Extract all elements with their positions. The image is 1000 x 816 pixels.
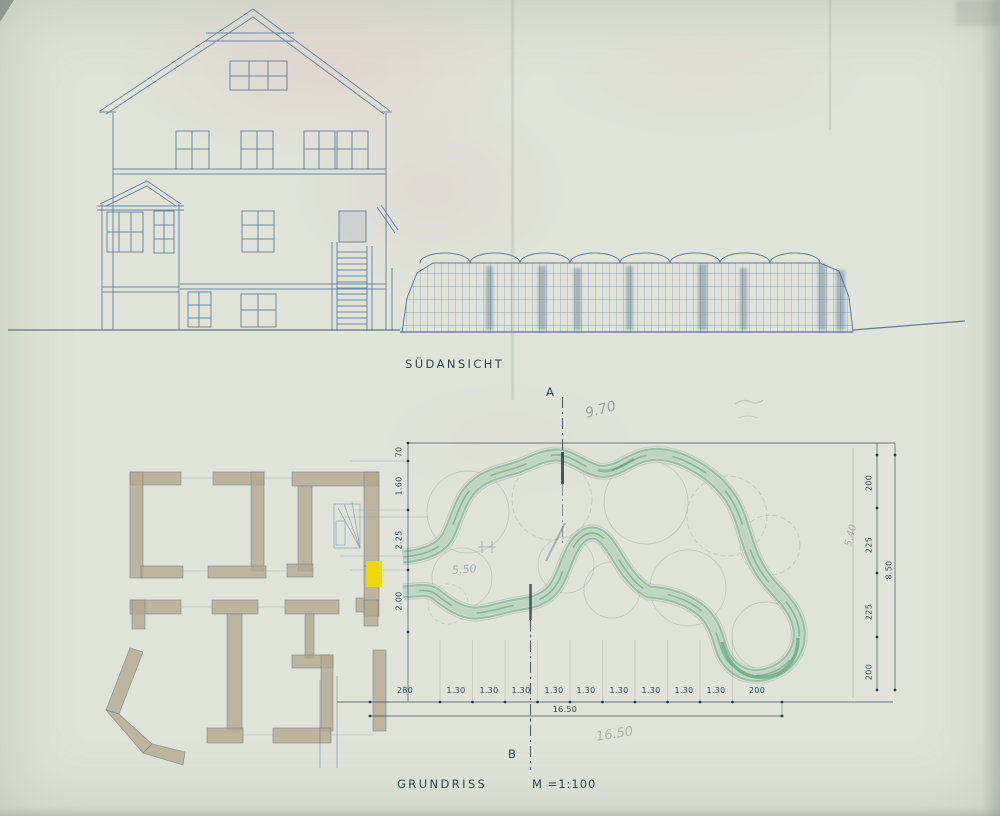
dim-right-3: 200 <box>865 664 874 680</box>
dim-bottom-9: 1.30 <box>706 686 725 695</box>
dim-bottom-4: 1.30 <box>544 686 563 695</box>
dim-left-0: 70 <box>395 447 404 458</box>
dim-bottom-total: 16.50 <box>553 705 577 714</box>
drawing-linework <box>0 0 1000 816</box>
attic-window <box>230 61 287 90</box>
section-label-b: B <box>508 747 517 761</box>
plan-title: GRUNDRISS <box>397 777 487 791</box>
dim-left-2: 2.25 <box>395 530 404 549</box>
house-elevation <box>97 9 398 331</box>
highlighted-wall-segment <box>366 561 382 587</box>
upper-windows <box>176 131 368 169</box>
dim-left-1: 1.60 <box>395 476 404 495</box>
dim-bottom-8: 1.30 <box>674 686 693 695</box>
dim-bottom-7: 1.30 <box>641 686 660 695</box>
dim-bottom-6: 1.30 <box>609 686 628 695</box>
dim-bottom-10: 200 <box>749 686 765 695</box>
plan-scale: M =1:100 <box>532 777 596 791</box>
scanned-blueprint-sheet: SÜDANSICHT GRUNDRISS M =1:100 A B 280 1.… <box>0 0 1000 816</box>
dim-bottom-1: 1.30 <box>446 686 465 695</box>
lower-windows <box>188 211 276 327</box>
bay-tower <box>97 181 184 330</box>
dim-right-2: 225 <box>865 604 874 620</box>
plan-walls <box>106 472 386 765</box>
dim-right-0: 200 <box>865 475 874 491</box>
dim-left-3: 2.00 <box>395 591 404 610</box>
entrance-stairs <box>332 205 398 331</box>
dim-right-total: 8.50 <box>885 560 894 579</box>
section-label-a: A <box>546 385 555 399</box>
elevation-title: SÜDANSICHT <box>405 357 504 371</box>
plan-stair <box>334 502 360 548</box>
dim-bottom-0: 280 <box>397 686 413 695</box>
dim-right-1: 225 <box>865 537 874 553</box>
dim-bottom-3: 1.30 <box>511 686 530 695</box>
handwritten-5-50: 5.50 <box>452 562 477 577</box>
frame-arches <box>420 253 820 263</box>
dim-bottom-2: 1.30 <box>479 686 498 695</box>
cold-frame-structure <box>402 253 853 332</box>
dim-bottom-5: 1.30 <box>576 686 595 695</box>
dimension-lines <box>320 443 895 768</box>
